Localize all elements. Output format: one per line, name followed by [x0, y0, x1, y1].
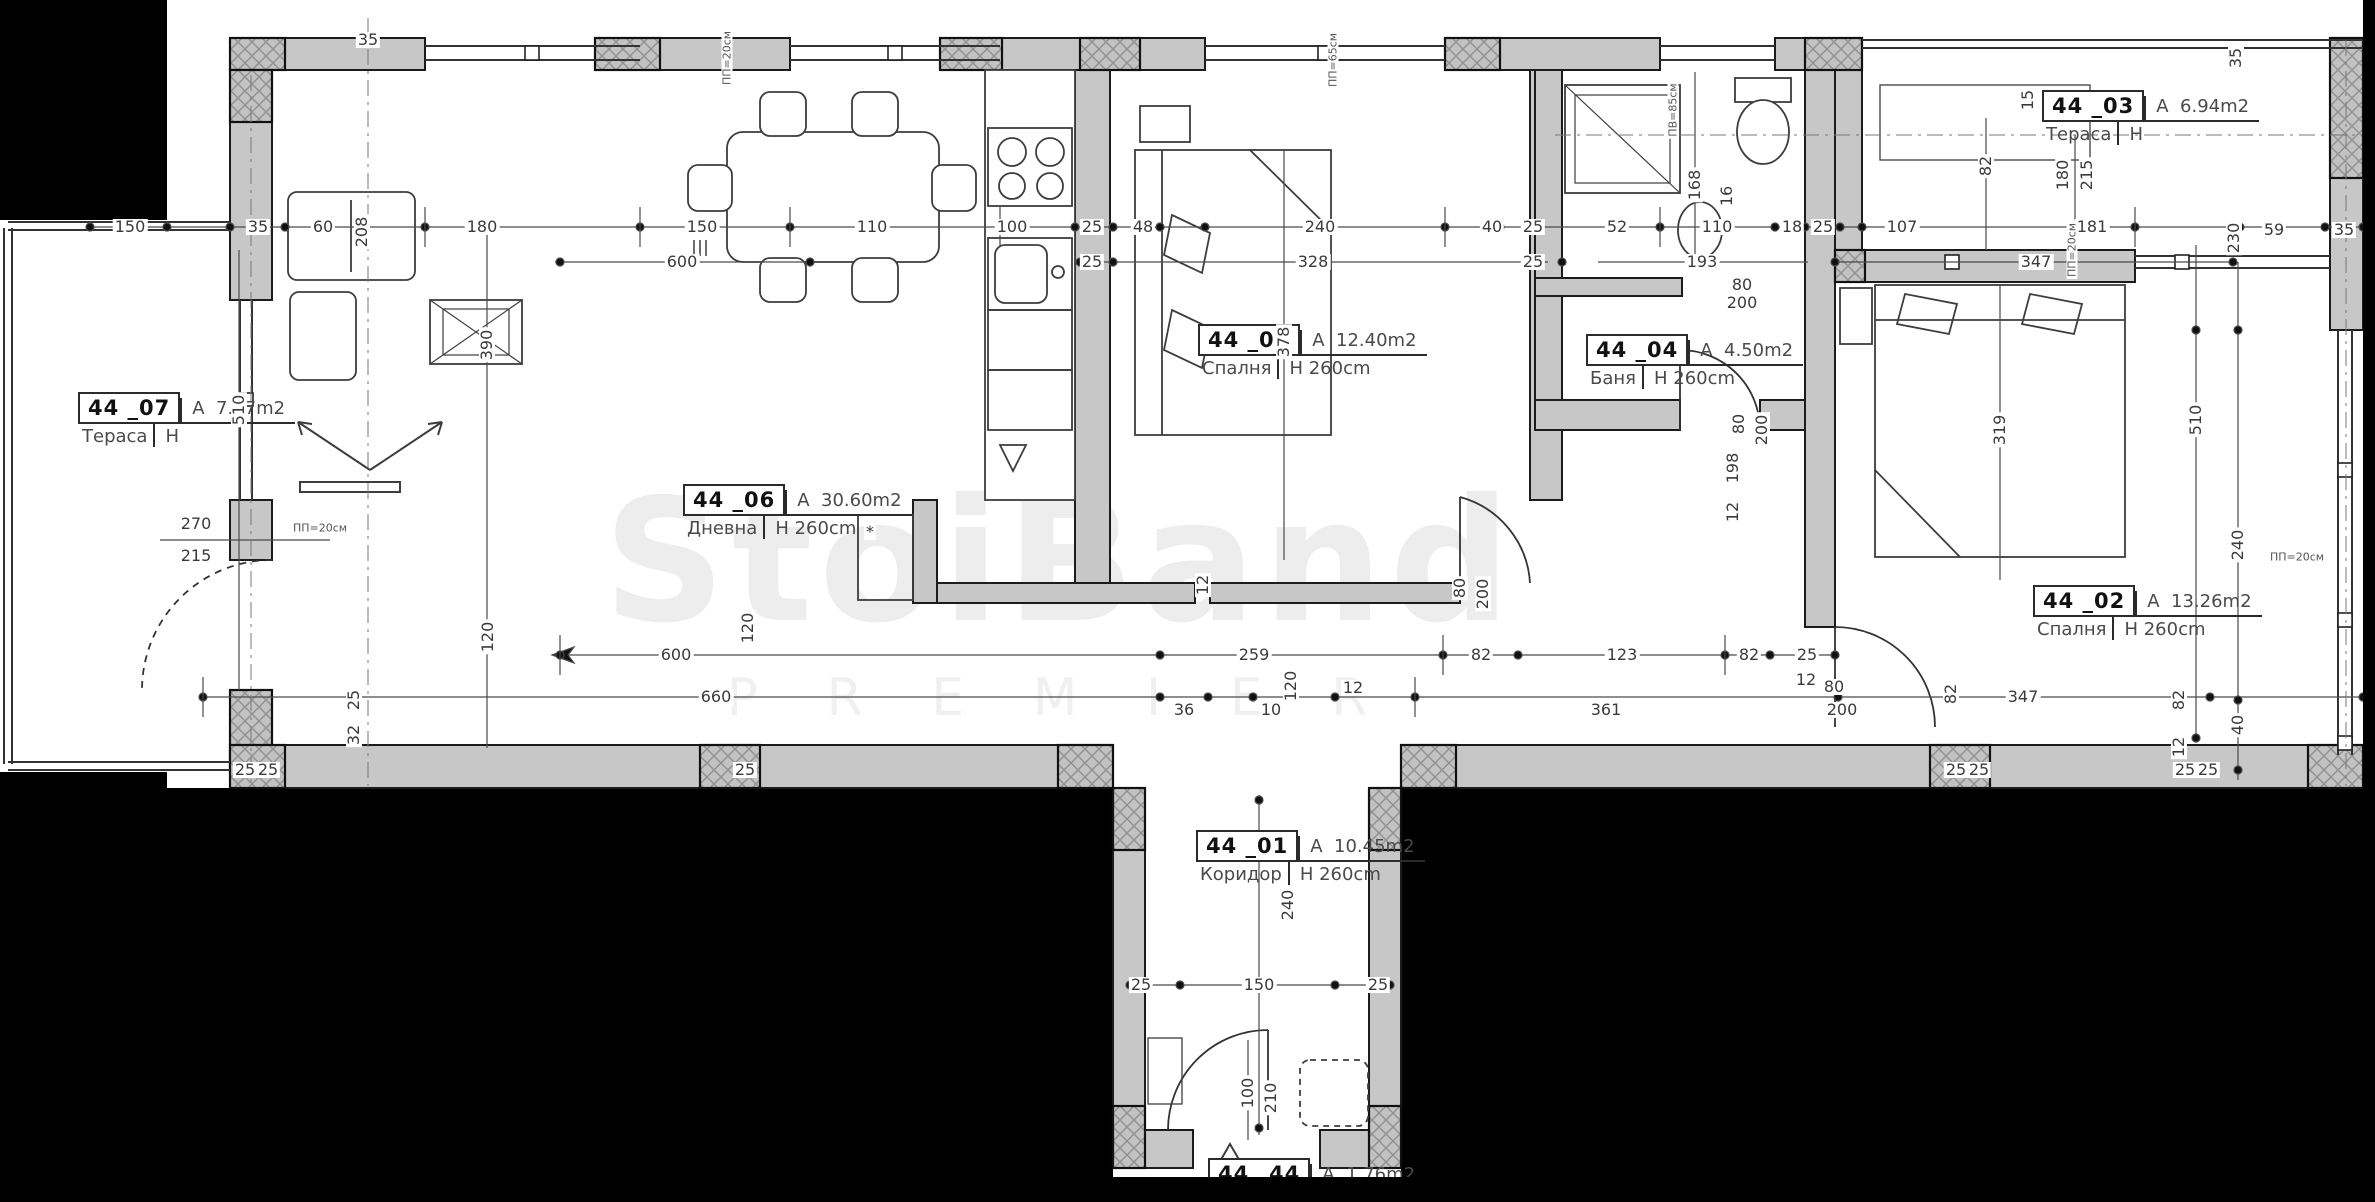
- dimension-label: 18: [1780, 219, 1804, 235]
- dimension-label: 25: [733, 762, 757, 778]
- dimension-label: 25: [1795, 647, 1819, 663]
- dimension-label: ПП=65см: [1328, 31, 1339, 89]
- dimension-label: 12: [2171, 735, 2187, 759]
- dimension-label: 193: [1685, 254, 1720, 270]
- dimension-label: ПП=20см: [291, 523, 349, 534]
- dimension-label: 510: [2188, 403, 2204, 438]
- dimension-label: 25: [2173, 762, 2197, 778]
- dimension-label: 25: [1521, 219, 1545, 235]
- dimension-label: 12: [1725, 500, 1741, 524]
- dimension-label: 270: [179, 516, 214, 532]
- dimension-label: 25: [233, 762, 257, 778]
- dimension-label: 259: [1237, 647, 1272, 663]
- dimension-label: 378: [1276, 325, 1292, 360]
- dimension-label: 198: [1725, 451, 1741, 486]
- dimension-label: 12: [1195, 573, 1211, 597]
- dimension-label: 123: [1605, 647, 1640, 663]
- dimension-label: 35: [2228, 46, 2244, 70]
- floorplan-drawing: StoiBand P R E M I E R: [0, 0, 2375, 1202]
- dimension-label: 200: [1475, 577, 1491, 612]
- dimension-label: 60: [311, 219, 335, 235]
- dimension-label: 25: [1080, 219, 1104, 235]
- dimension-label: 80: [1730, 277, 1754, 293]
- dimension-label: 82: [1978, 154, 1994, 178]
- dimension-label: 25: [1811, 219, 1835, 235]
- room-label-44_07: 44 _07A 7.97m2ТерасаH: [78, 392, 295, 447]
- dimension-label: 210: [1263, 1081, 1279, 1116]
- dimension-label: 600: [659, 647, 694, 663]
- dimension-label: 100: [995, 219, 1030, 235]
- dimension-label: 59: [2262, 222, 2286, 238]
- dimension-label: 15: [2020, 88, 2036, 112]
- dimension-label: 107: [1885, 219, 1920, 235]
- dimension-label: 180: [465, 219, 500, 235]
- dimension-label: 168: [1687, 168, 1703, 203]
- dimension-label: 319: [1992, 413, 2008, 448]
- dimension-label: 12: [1341, 680, 1365, 696]
- room-code: 44 _06: [683, 484, 785, 516]
- dimension-label: 240: [2230, 528, 2246, 563]
- dimension-label: 40: [2230, 713, 2246, 737]
- dimension-label: 347: [2019, 254, 2054, 270]
- toilet: [1737, 100, 1789, 164]
- room-label-44_02: 44 _02A 13.26m2СпалняH 260cm: [2033, 585, 2262, 640]
- dimension-label: 510: [231, 393, 247, 428]
- bottom-crop-mask: [0, 1177, 2375, 1202]
- dimension-label: 25: [1080, 254, 1104, 270]
- dimension-label: ПП=20см: [722, 29, 733, 87]
- room-name: Дневна: [683, 516, 763, 539]
- room-height: H 260cm: [763, 516, 856, 539]
- dimension-label: 25: [256, 762, 280, 778]
- room-code: 44 _07: [78, 392, 180, 424]
- room-area: A 13.26m2: [2135, 591, 2261, 617]
- dimension-label: 240: [1303, 219, 1338, 235]
- right-crop-mask: [2363, 0, 2375, 1202]
- room-area: A 12.40m2: [1300, 330, 1426, 356]
- dimension-label: 25: [1944, 762, 1968, 778]
- room-code: 44 _01: [1196, 830, 1298, 862]
- sink: [988, 238, 1072, 310]
- dimension-label: 25: [1967, 762, 1991, 778]
- dimension-label: 110: [855, 219, 890, 235]
- room-height: H: [153, 424, 179, 447]
- room-area: A 10.45m2: [1298, 836, 1424, 862]
- dimension-label: 180: [2055, 158, 2071, 193]
- dimension-label: 12: [1794, 672, 1818, 688]
- dimension-label: 16: [1719, 184, 1735, 208]
- dimension-label: 10: [1259, 702, 1283, 718]
- dimension-label: 200: [1725, 295, 1760, 311]
- dimension-label: 25: [346, 688, 362, 712]
- dimension-label: 150: [113, 219, 148, 235]
- dimension-label: 25: [1129, 977, 1153, 993]
- dimension-label: 181: [2075, 219, 2110, 235]
- dimension-label: 25: [2196, 762, 2220, 778]
- room-label-44_01: 44 _01A 10.45m2КоридорH 260cm: [1196, 830, 1425, 885]
- dimension-label: 82: [1469, 647, 1493, 663]
- dimension-label: 200: [1825, 702, 1860, 718]
- dimension-label: ПП=20см: [2268, 552, 2326, 563]
- room-name: Спалня: [2033, 617, 2112, 640]
- room-area: A 4.50m2: [1688, 340, 1803, 366]
- room-name: Спалня: [1198, 356, 1277, 379]
- dimension-label: 35: [246, 219, 270, 235]
- dimension-label: 35: [2332, 222, 2356, 238]
- dimension-label: 120: [480, 620, 496, 655]
- dimension-label: 230: [2226, 221, 2242, 256]
- dimension-label: 215: [179, 548, 214, 564]
- room-name: Тераса: [2042, 122, 2117, 145]
- room-code: 44 _03: [2042, 90, 2144, 122]
- dimension-label: 80: [1452, 576, 1468, 600]
- dimension-label: 80: [1731, 412, 1747, 436]
- dimension-label: 52: [1605, 219, 1629, 235]
- dimension-label: 600: [665, 254, 700, 270]
- room-area: A 6.94m2: [2144, 96, 2259, 122]
- room-label-44_04: 44 _04A 4.50m2БаняH 260cm: [1586, 334, 1803, 389]
- dimension-label: 208: [354, 215, 370, 250]
- dimension-label: 150: [1242, 977, 1277, 993]
- dimension-label: ПВ=85см: [1668, 81, 1679, 138]
- dimension-label: 35: [356, 32, 380, 48]
- room-height: H 260cm: [2112, 617, 2205, 640]
- dimension-label: 390: [479, 328, 495, 363]
- dimension-label: 82: [1737, 647, 1761, 663]
- dimension-label: 200: [1754, 413, 1770, 448]
- dimension-label: 25: [1521, 254, 1545, 270]
- dimension-label: 32: [346, 723, 362, 747]
- dimension-label: 25: [1366, 977, 1390, 993]
- dimension-label: 82: [2171, 688, 2187, 712]
- dimension-label: 100: [1240, 1076, 1256, 1111]
- room-code: 44 _04: [1586, 334, 1688, 366]
- dimension-label: 82: [1943, 682, 1959, 706]
- dimension-label: 40: [1480, 219, 1504, 235]
- dimension-label: 110: [1700, 219, 1735, 235]
- dimension-label: *: [864, 524, 876, 540]
- dimension-label: 120: [740, 611, 756, 646]
- dimension-label: 150: [685, 219, 720, 235]
- dimension-label: 48: [1131, 219, 1155, 235]
- dimension-label: 328: [1296, 254, 1331, 270]
- dimension-label: 660: [699, 689, 734, 705]
- room-label-44_05: 44 _05A 12.40m2СпалняH 260cm: [1198, 324, 1427, 379]
- dimension-label: 36: [1172, 702, 1196, 718]
- room-name: Тераса: [78, 424, 153, 447]
- room-area: A 30.60m2: [785, 490, 911, 516]
- room-height: H 260cm: [1277, 356, 1370, 379]
- dimension-label: 240: [1280, 888, 1296, 923]
- dimension-label: ПП=20см: [2067, 221, 2078, 279]
- toilet-tank: [1735, 78, 1791, 102]
- room-code: 44 _02: [2033, 585, 2135, 617]
- room-name: Коридор: [1196, 862, 1288, 885]
- floorplan-canvas: StoiBand P R E M I E R: [0, 0, 2375, 1202]
- dimension-label: 361: [1589, 702, 1624, 718]
- dimension-label: 80: [1822, 679, 1846, 695]
- room-label-44_03: 44 _03A 6.94m2ТерасаH: [2042, 90, 2259, 145]
- room-label-44_06: 44 _06A 30.60m2ДневнаH 260cm: [683, 484, 912, 539]
- bed-bedroom02: [1840, 285, 2125, 557]
- dimension-label: 347: [2006, 689, 2041, 705]
- room-height: H 260cm: [1642, 366, 1735, 389]
- room-height: H 260cm: [1288, 862, 1381, 885]
- room-height: H: [2117, 122, 2143, 145]
- dimension-label: 120: [1283, 669, 1299, 704]
- room-name: Баня: [1586, 366, 1642, 389]
- dimension-label: 215: [2079, 158, 2095, 193]
- coffee-table: [430, 300, 522, 364]
